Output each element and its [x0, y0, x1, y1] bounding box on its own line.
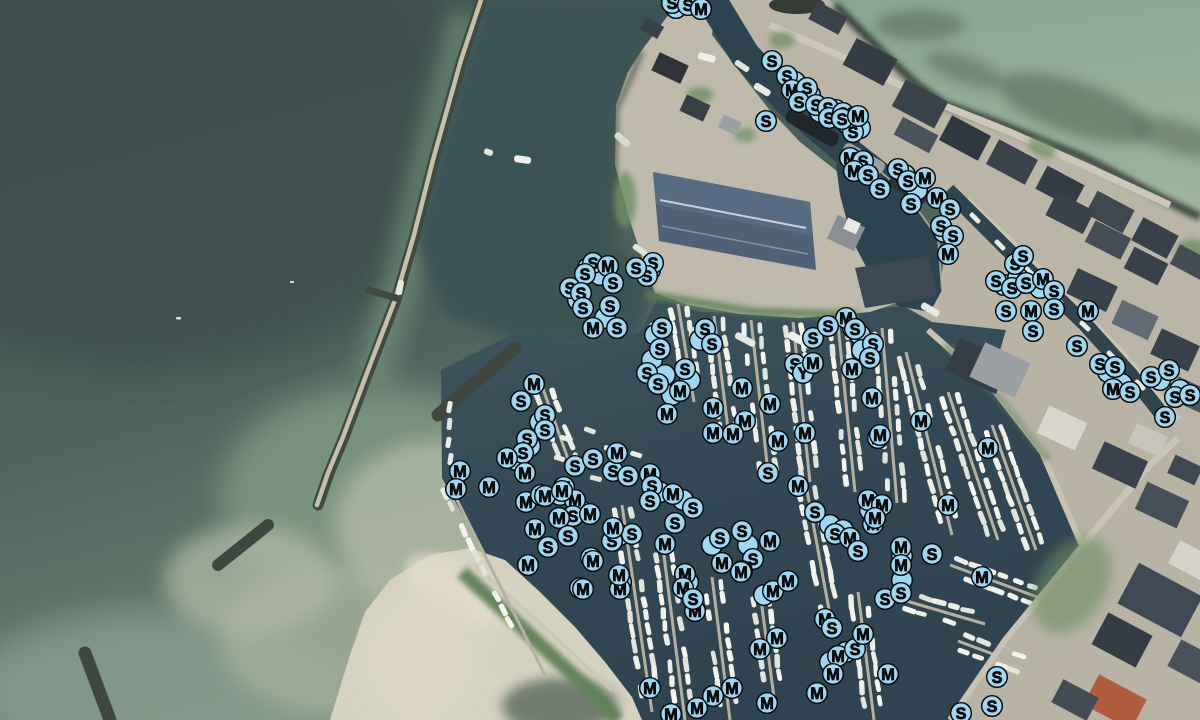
svg-text:S: S — [945, 201, 956, 219]
svg-text:S: S — [1160, 409, 1171, 427]
svg-text:M: M — [845, 361, 858, 379]
svg-text:S: S — [991, 273, 1002, 291]
svg-text:S: S — [1001, 303, 1012, 321]
svg-text:S: S — [667, 0, 678, 13]
svg-text:S: S — [830, 526, 841, 544]
svg-text:S: S — [896, 585, 907, 603]
svg-text:M: M — [725, 680, 738, 698]
svg-text:M: M — [798, 425, 811, 443]
svg-text:M: M — [576, 581, 589, 599]
svg-text:M: M — [851, 108, 864, 126]
svg-text:S: S — [761, 113, 772, 131]
svg-text:M: M — [518, 465, 531, 483]
svg-text:S: S — [808, 330, 819, 348]
svg-text:M: M — [735, 380, 748, 398]
svg-text:M: M — [941, 497, 954, 515]
svg-text:S: S — [1072, 338, 1083, 356]
svg-text:M: M — [856, 626, 869, 644]
svg-text:S: S — [823, 318, 834, 336]
svg-text:M: M — [706, 688, 719, 706]
svg-text:S: S — [543, 539, 554, 557]
svg-text:M: M — [918, 170, 931, 188]
svg-text:M: M — [770, 630, 783, 648]
svg-text:S: S — [608, 463, 619, 481]
svg-text:S: S — [1028, 323, 1039, 341]
svg-text:S: S — [763, 465, 774, 483]
svg-text:M: M — [763, 396, 776, 414]
svg-text:M: M — [528, 521, 541, 539]
svg-text:M: M — [753, 641, 766, 659]
svg-text:M: M — [771, 433, 784, 451]
svg-text:M: M — [763, 533, 776, 551]
svg-text:S: S — [767, 53, 778, 71]
svg-text:M: M — [873, 427, 886, 445]
svg-text:M: M — [715, 555, 728, 573]
svg-text:S: S — [653, 376, 664, 394]
svg-text:S: S — [927, 546, 938, 564]
svg-text:S: S — [570, 458, 581, 476]
svg-text:M: M — [734, 564, 747, 582]
svg-text:S: S — [631, 260, 642, 278]
svg-text:M: M — [781, 573, 794, 591]
svg-text:M: M — [666, 486, 679, 504]
svg-text:M: M — [690, 700, 703, 718]
svg-text:S: S — [657, 320, 668, 338]
svg-text:M: M — [527, 376, 540, 394]
svg-text:S: S — [1185, 387, 1196, 405]
svg-text:S: S — [850, 321, 861, 339]
svg-text:S: S — [827, 620, 838, 638]
svg-text:M: M — [1106, 381, 1119, 399]
svg-text:M: M — [694, 1, 707, 19]
svg-text:M: M — [555, 483, 568, 501]
svg-text:S: S — [906, 196, 917, 214]
svg-text:M: M — [500, 450, 513, 468]
svg-text:S: S — [875, 181, 886, 199]
svg-text:M: M — [826, 666, 839, 684]
svg-text:S: S — [645, 493, 656, 511]
svg-text:M: M — [538, 488, 551, 506]
svg-text:S: S — [880, 591, 891, 609]
svg-text:M: M — [894, 557, 907, 575]
svg-text:S: S — [688, 500, 699, 518]
svg-text:S: S — [715, 530, 726, 548]
svg-text:S: S — [992, 669, 1003, 687]
svg-text:M: M — [1081, 303, 1094, 321]
svg-text:S: S — [608, 275, 619, 293]
svg-text:S: S — [605, 298, 616, 316]
svg-text:S: S — [1021, 275, 1032, 293]
svg-text:M: M — [552, 510, 565, 528]
svg-text:S: S — [580, 266, 591, 284]
svg-text:S: S — [540, 422, 551, 440]
svg-text:S: S — [987, 698, 998, 716]
svg-text:S: S — [903, 173, 914, 191]
svg-text:S: S — [837, 111, 848, 129]
svg-text:S: S — [655, 341, 666, 359]
svg-text:M: M — [791, 478, 804, 496]
svg-text:S: S — [623, 468, 634, 486]
svg-text:S: S — [1049, 301, 1060, 319]
svg-text:M: M — [806, 355, 819, 373]
svg-text:M: M — [610, 445, 623, 463]
svg-text:M: M — [981, 440, 994, 458]
svg-text:M: M — [865, 390, 878, 408]
svg-text:M: M — [868, 510, 881, 528]
svg-text:S: S — [563, 528, 574, 546]
svg-text:M: M — [760, 695, 773, 713]
svg-text:S: S — [853, 543, 864, 561]
svg-text:S: S — [1170, 389, 1181, 407]
svg-text:M: M — [941, 246, 954, 264]
svg-text:M: M — [766, 583, 779, 601]
svg-text:S: S — [956, 705, 967, 720]
svg-text:S: S — [1018, 248, 1029, 266]
svg-text:M: M — [482, 479, 495, 497]
svg-text:M: M — [612, 567, 625, 585]
svg-text:S: S — [578, 300, 589, 318]
svg-text:M: M — [706, 425, 719, 443]
svg-text:S: S — [670, 515, 681, 533]
svg-text:S: S — [627, 526, 638, 544]
svg-text:M: M — [660, 406, 673, 424]
svg-text:S: S — [1110, 359, 1121, 377]
svg-text:M: M — [1024, 303, 1037, 321]
svg-text:S: S — [588, 451, 599, 469]
svg-text:M: M — [881, 666, 894, 684]
svg-text:M: M — [664, 706, 677, 720]
svg-text:S: S — [865, 350, 876, 368]
svg-text:M: M — [914, 413, 927, 431]
svg-text:S: S — [737, 523, 748, 541]
svg-text:S: S — [688, 591, 699, 609]
svg-text:S: S — [516, 393, 527, 411]
svg-text:M: M — [726, 426, 739, 444]
svg-text:M: M — [449, 481, 462, 499]
svg-text:M: M — [586, 553, 599, 571]
svg-text:S: S — [612, 320, 623, 338]
svg-text:S: S — [518, 445, 529, 463]
svg-text:S: S — [794, 94, 805, 112]
svg-text:S: S — [810, 504, 821, 522]
svg-text:M: M — [583, 506, 596, 524]
svg-text:S: S — [707, 336, 718, 354]
svg-text:S: S — [1095, 356, 1106, 374]
svg-text:M: M — [586, 320, 599, 338]
svg-text:M: M — [643, 680, 656, 698]
svg-text:S: S — [680, 361, 691, 379]
svg-text:M: M — [658, 536, 671, 554]
svg-text:M: M — [706, 400, 719, 418]
svg-text:M: M — [810, 685, 823, 703]
svg-text:M: M — [975, 569, 988, 587]
svg-text:S: S — [1125, 384, 1136, 402]
svg-text:S: S — [1146, 369, 1157, 387]
svg-text:M: M — [606, 520, 619, 538]
svg-text:S: S — [1164, 362, 1175, 380]
svg-text:M: M — [521, 557, 534, 575]
svg-text:M: M — [673, 383, 686, 401]
